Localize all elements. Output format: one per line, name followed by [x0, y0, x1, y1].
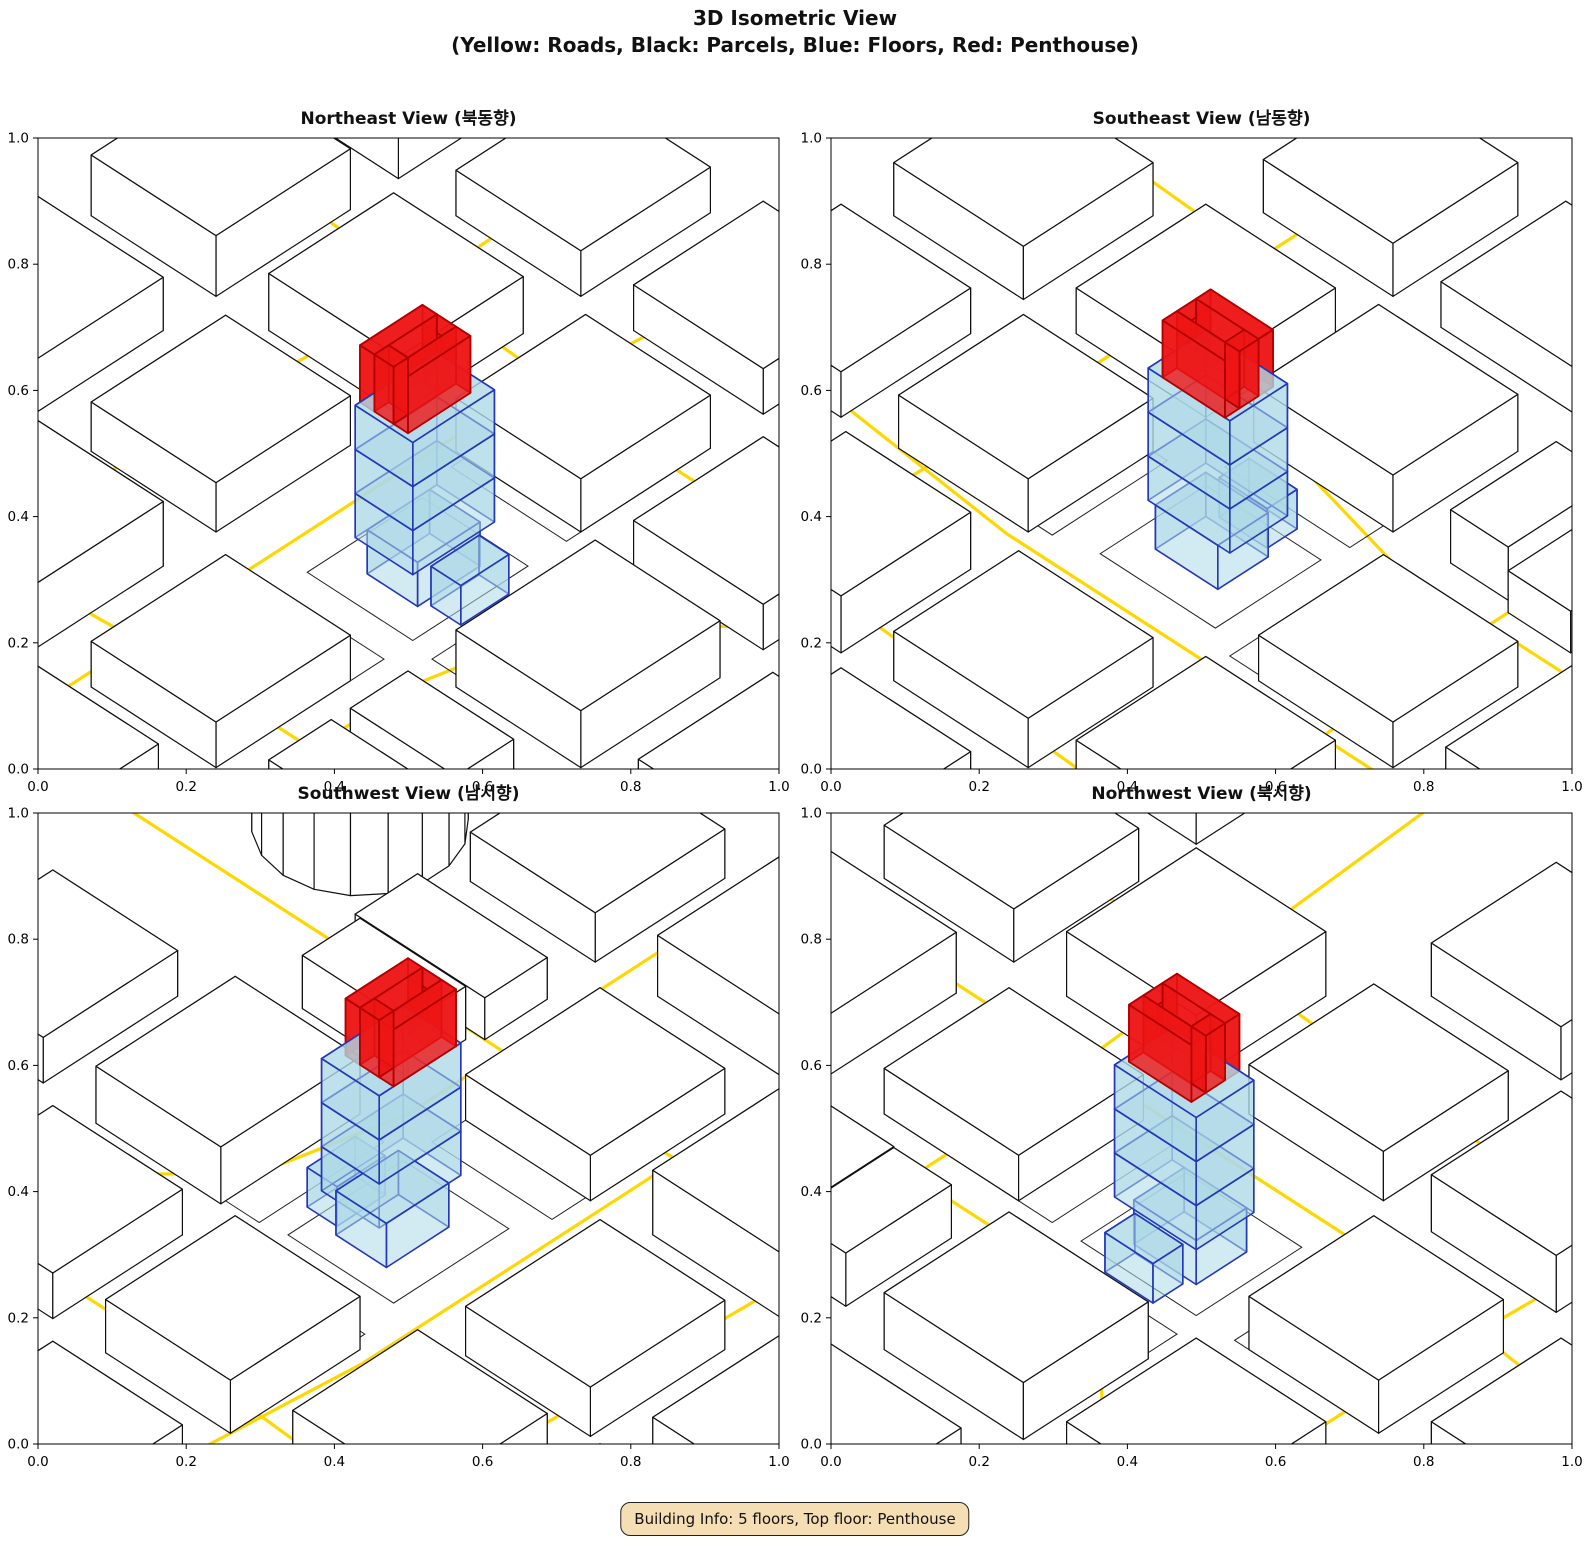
x-tick-label: 0.6 [1265, 1454, 1286, 1470]
x-tick-label: 0.0 [820, 1454, 841, 1470]
parcel-block [786, 539, 788, 687]
x-tick-label: 0.2 [175, 1454, 196, 1470]
plot-southwest: 0.00.00.20.20.40.40.60.60.80.81.01.0 [0, 801, 824, 1489]
y-tick-label: 0.0 [801, 1437, 822, 1453]
cylinder-building [283, 801, 314, 889]
y-tick-label: 0.2 [801, 635, 822, 651]
parcel-block [786, 539, 788, 706]
x-tick-label: 0.2 [968, 1454, 989, 1470]
parcel-block [786, 406, 788, 532]
parcel-block [1571, 527, 1590, 653]
plot-northeast: 0.00.00.20.20.40.40.60.60.80.81.01.0 [0, 126, 824, 814]
cylinder-building [262, 801, 284, 875]
x-tick-label: 0.4 [324, 1454, 345, 1470]
parcel-block [1196, 801, 1321, 844]
y-tick-label: 0.8 [8, 257, 29, 273]
y-tick-label: 0.8 [801, 257, 822, 273]
building-info-badge: Building Info: 5 floors, Top floor: Pent… [620, 1502, 969, 1536]
parcel-block [269, 126, 528, 129]
x-tick-label: 1.0 [1561, 1454, 1582, 1470]
y-tick-label: 0.0 [8, 1437, 29, 1453]
y-tick-label: 0.4 [8, 509, 29, 525]
y-tick-label: 0.6 [8, 1058, 29, 1074]
y-tick-label: 1.0 [801, 131, 822, 147]
parcel-block [786, 322, 788, 451]
figure-subtitle: (Yellow: Roads, Black: Parcels, Blue: Fl… [0, 33, 1590, 57]
parcel-block [106, 1459, 236, 1489]
x-tick-label: 0.6 [472, 1454, 493, 1470]
parcel-block [106, 1459, 360, 1489]
cylinder-building [351, 802, 389, 895]
y-tick-label: 0.6 [801, 1058, 822, 1074]
plot-northwest: 0.00.00.20.20.40.40.60.60.80.81.01.0 [786, 801, 1590, 1489]
cylinder-building [449, 801, 465, 866]
y-tick-label: 0.2 [801, 1310, 822, 1326]
penthouse-wall-west [394, 358, 408, 424]
parcel-block [0, 418, 34, 566]
scene-southeast [786, 126, 1590, 814]
cylinder-building [252, 801, 262, 855]
parcel-block [600, 1444, 725, 1489]
y-tick-label: 0.2 [8, 1310, 29, 1326]
subplot-northwest: Northwest View (북서향) 0.00.00.20.20.40.40… [786, 773, 1590, 1489]
y-tick-label: 0.6 [801, 383, 822, 399]
subplot-southeast: Southeast View (남동향) 0.00.00.20.20.40.40… [786, 98, 1590, 814]
subplot-southwest: Southwest View (남서향) 0.00.00.20.20.40.40… [0, 773, 824, 1489]
parcel-block [1379, 1448, 1509, 1489]
cylinder-building [255, 801, 271, 808]
x-tick-label: 0.0 [27, 1454, 48, 1470]
scene-northeast [0, 126, 824, 814]
y-tick-label: 0.4 [801, 509, 822, 525]
y-tick-label: 0.8 [801, 932, 822, 948]
cylinder-building [314, 801, 350, 896]
parcel-block [786, 935, 827, 1076]
penthouse-wall-east [1191, 1026, 1205, 1092]
y-tick-label: 0.6 [8, 383, 29, 399]
penthouse-wall-east [379, 1011, 393, 1077]
parcel-block [466, 1444, 725, 1489]
cylinder-building [252, 801, 468, 804]
x-tick-label: 0.8 [1413, 1454, 1434, 1470]
y-tick-label: 1.0 [8, 806, 29, 822]
y-tick-label: 0.2 [8, 635, 29, 651]
y-tick-label: 1.0 [8, 131, 29, 147]
parcel-block [786, 852, 831, 997]
parcel-block [786, 322, 788, 486]
subplot-northeast: Northeast View (북동향) 0.00.00.20.20.40.40… [0, 98, 824, 814]
parcel-block [884, 1451, 1138, 1489]
y-tick-label: 0.8 [8, 932, 29, 948]
parcel-block [1575, 288, 1590, 414]
y-tick-label: 0.4 [8, 1184, 29, 1200]
parcel-block [884, 1451, 1009, 1489]
x-tick-label: 0.8 [620, 1454, 641, 1470]
scene-northwest [786, 801, 1590, 1489]
penthouse-wall-west [1225, 342, 1239, 408]
y-tick-label: 1.0 [801, 806, 822, 822]
figure-title: 3D Isometric View [0, 6, 1590, 30]
x-tick-label: 0.4 [1117, 1454, 1138, 1470]
parcel-block [786, 1106, 831, 1232]
plot-southeast: 0.00.00.20.20.40.40.60.60.80.81.01.0 [786, 126, 1590, 814]
parcel-block [1249, 1448, 1508, 1489]
scene-southwest [0, 801, 824, 1489]
parcel-block [786, 626, 788, 767]
y-tick-label: 0.4 [801, 1184, 822, 1200]
figure: 3D Isometric View (Yellow: Roads, Black:… [0, 0, 1590, 1560]
